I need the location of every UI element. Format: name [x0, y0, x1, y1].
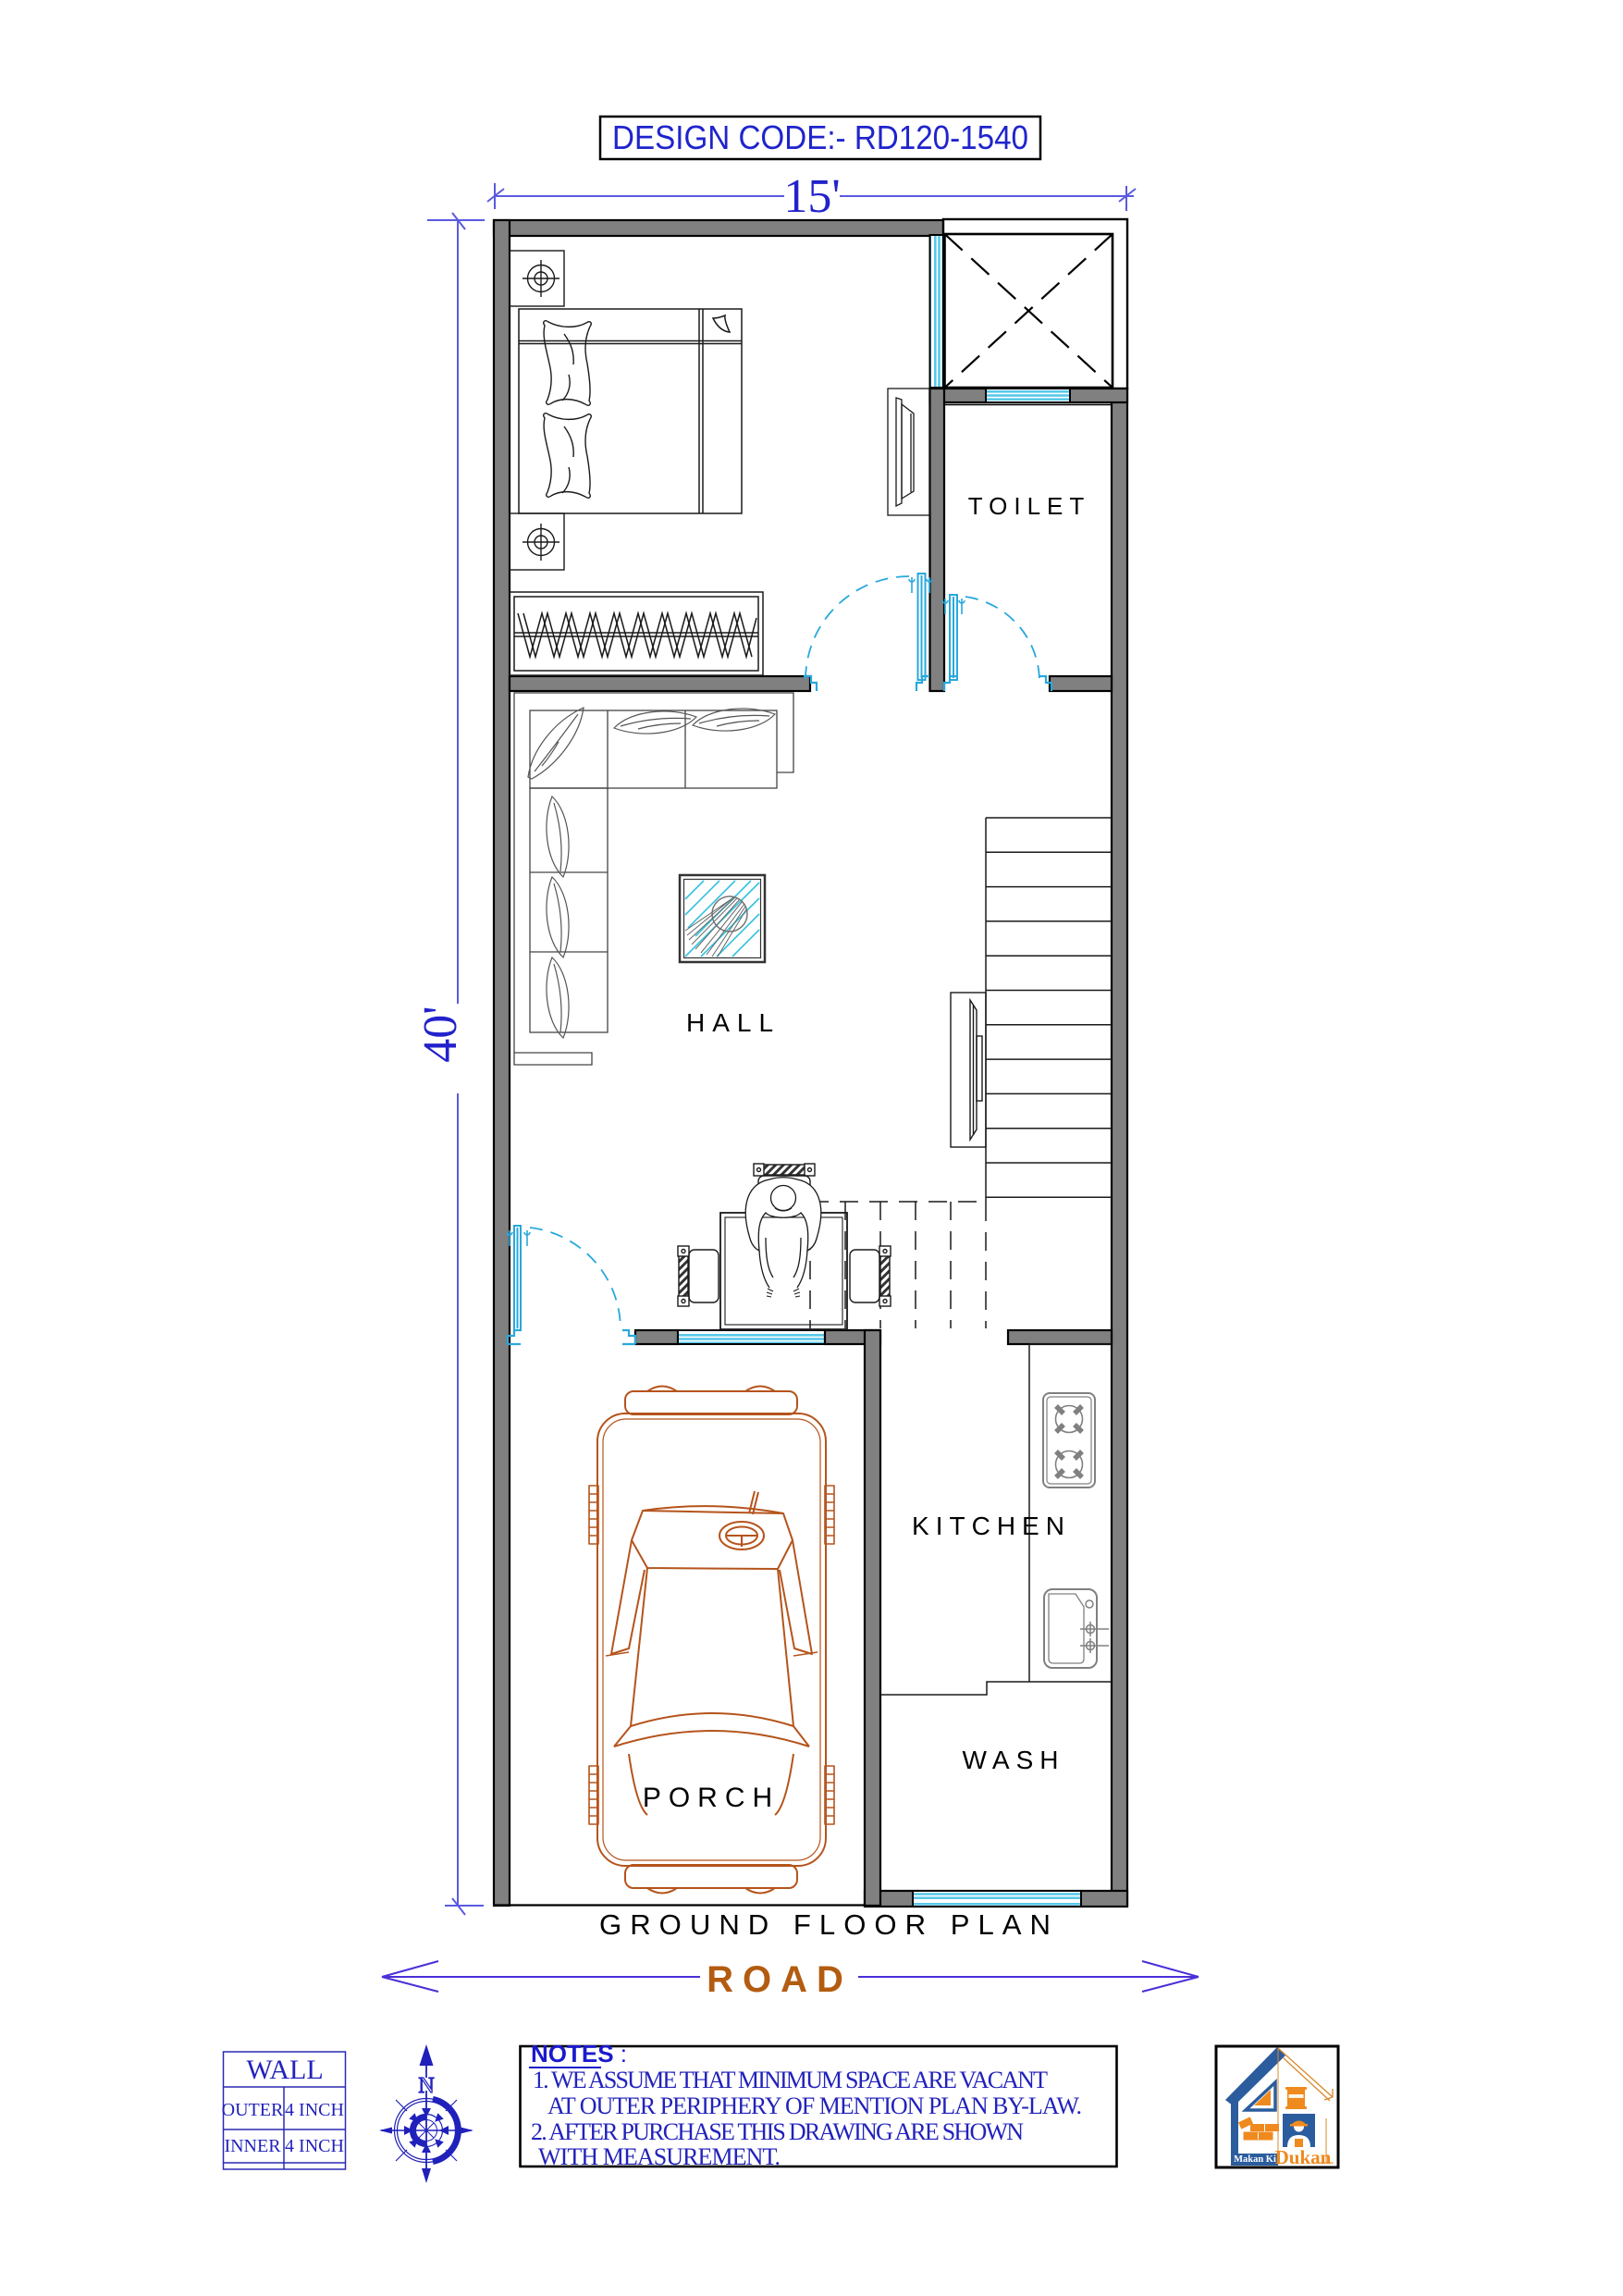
svg-text:WASH: WASH	[963, 1746, 1065, 1774]
svg-text:PORCH: PORCH	[643, 1783, 780, 1813]
svg-text:OUTER: OUTER	[222, 2100, 284, 2120]
svg-text:INNER: INNER	[224, 2136, 281, 2156]
svg-text:2. AFTER PURCHASE THIS DRAWING: 2. AFTER PURCHASE THIS DRAWING ARE SHOWN	[531, 2118, 1024, 2145]
svg-text:ROAD: ROAD	[707, 1959, 853, 2000]
svg-text:40': 40'	[414, 1006, 467, 1062]
svg-text:DESIGN CODE:- RD120-1540: DESIGN CODE:- RD120-1540	[612, 118, 1028, 156]
svg-text:1. WE ASSUME THAT MINIMUM SPAC: 1. WE ASSUME THAT MINIMUM SPACE ARE VACA…	[533, 2067, 1048, 2093]
svg-text:Dukan: Dukan	[1275, 2146, 1332, 2168]
svg-text:TOILET: TOILET	[968, 492, 1091, 520]
svg-text:15': 15'	[783, 170, 840, 223]
svg-text:HALL: HALL	[686, 1008, 781, 1037]
svg-text:NOTES :: NOTES :	[531, 2040, 627, 2068]
svg-text:AT OUTER PERIPHERY OF MENTION: AT OUTER PERIPHERY OF MENTION PLAN BY-LA…	[547, 2092, 1082, 2119]
svg-text:WITH MEASUREMENT.: WITH MEASUREMENT.	[538, 2143, 781, 2170]
svg-text:KITCHEN: KITCHEN	[912, 1512, 1071, 1540]
svg-text:N: N	[418, 2074, 434, 2098]
svg-text:WALL: WALL	[246, 2055, 323, 2085]
svg-text:Makan Ki: Makan Ki	[1234, 2154, 1276, 2165]
svg-text:4 INCH: 4 INCH	[285, 2100, 344, 2120]
svg-text:GROUND FLOOR PLAN: GROUND FLOOR PLAN	[599, 1908, 1059, 1941]
svg-text:4 INCH: 4 INCH	[285, 2136, 344, 2156]
